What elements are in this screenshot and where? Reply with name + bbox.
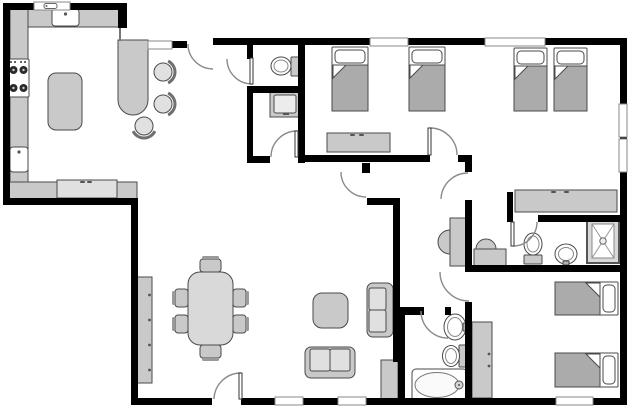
window-bar-pass: [148, 41, 172, 49]
bed-tr-1-pillow: [517, 51, 544, 64]
dining-table: [188, 272, 233, 345]
bedroom-mid-door-leaf: [428, 128, 431, 155]
hall-basin: [450, 218, 467, 266]
wall-bath-stub-east: [445, 307, 451, 315]
bed-tr-2-pillow: [557, 51, 584, 64]
doorway-bedroom-tr: [464, 172, 473, 200]
wc-door-swing: [227, 59, 252, 84]
kitchen-top-sink: [52, 9, 79, 26]
dishwasher: [57, 180, 117, 198]
shower-drain: [600, 238, 606, 244]
doorway-ensuite: [513, 214, 538, 223]
front-door-leaf: [239, 373, 242, 399]
doorway-bedroom-mid: [430, 154, 458, 163]
window-east-2: [619, 139, 627, 172]
wall-south-kitchen: [3, 198, 137, 205]
dining-chair-6: [200, 345, 221, 358]
bed-mid-2-pillow: [412, 50, 442, 63]
window-bedroom-tr: [485, 38, 545, 46]
wall-wc-south: [247, 86, 305, 93]
breakfast-bar: [118, 40, 148, 115]
kitchen-island: [48, 73, 82, 130]
floor-plan: [0, 0, 630, 414]
hallbath-toilet-tank: [459, 345, 466, 367]
dresser-tr: [515, 190, 617, 212]
bed-br-2-pillow: [603, 356, 615, 384]
bed-br-1-pillow: [603, 285, 615, 312]
wall-bath-west: [398, 307, 405, 400]
ensuite-sink-faucet: [563, 261, 569, 265]
wall-br-bedroom-north: [465, 265, 627, 272]
vestibule-basin: [474, 249, 506, 266]
storage-cabinet: [381, 360, 398, 399]
dining-chair-3: [233, 289, 246, 307]
dresser-mid: [327, 133, 390, 152]
window-east-1: [619, 104, 627, 137]
vestibule-basin-basin: [476, 239, 496, 249]
doorway-bedroom-br: [464, 272, 473, 302]
wardrobe: [472, 322, 492, 398]
floor-plan-drawing: [0, 0, 630, 414]
side-table: [313, 293, 348, 328]
wall-west-living: [131, 198, 138, 405]
wall-kitchen-column: [118, 3, 127, 28]
window-south-1: [275, 397, 303, 405]
bar-stool-3: [135, 117, 153, 135]
window-bedroom-mid: [370, 38, 408, 46]
dining-chair-2: [175, 315, 188, 333]
stove: [8, 59, 29, 97]
doorway-front: [212, 397, 241, 406]
wall-hall-stub: [362, 163, 370, 173]
dining-chair-4: [233, 315, 246, 333]
vanity-room-door-leaf: [295, 131, 298, 157]
ensuite-door-leaf: [511, 222, 514, 246]
doorway-vanity-room: [270, 155, 298, 164]
bar-edge-line: [119, 28, 121, 41]
window-south-2: [338, 397, 366, 405]
dining-chair-5: [200, 259, 221, 272]
wall-vanityroom-west: [247, 86, 253, 163]
wall-south: [131, 398, 627, 405]
wall-bar-cap: [172, 41, 187, 48]
window-south-3: [556, 397, 593, 405]
wall-top-main: [213, 38, 627, 45]
wall-west-kitchen: [3, 3, 10, 205]
bar-stool-1: [154, 63, 172, 81]
wall-wc-stub: [247, 45, 253, 59]
sideboard: [136, 277, 152, 383]
bar-stool-2: [154, 95, 172, 113]
ensuite-toilet-tank: [524, 255, 542, 264]
wc-door-leaf: [250, 58, 253, 84]
dining-chair-1: [175, 289, 188, 307]
wall-wc-east: [298, 45, 305, 162]
bed-mid-1-pillow: [335, 50, 365, 63]
